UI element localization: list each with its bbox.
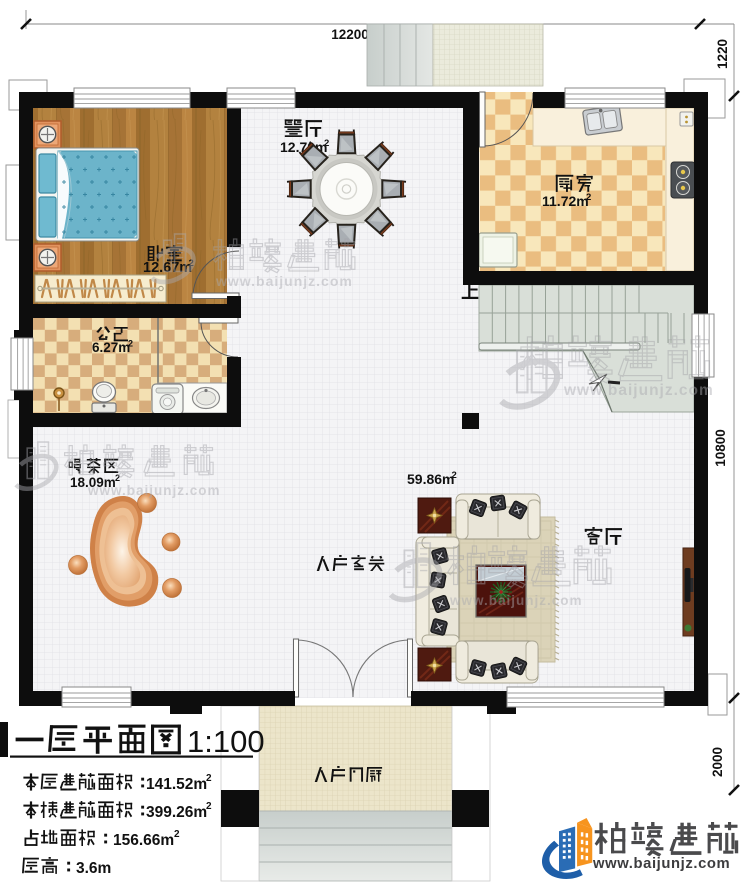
svg-text:2: 2 — [452, 470, 457, 481]
svg-text:12200: 12200 — [331, 27, 369, 42]
svg-text:2: 2 — [128, 339, 133, 349]
svg-text:3.6m: 3.6m — [76, 860, 111, 877]
svg-text:2: 2 — [174, 829, 180, 840]
svg-text:1:100: 1:100 — [187, 724, 265, 759]
svg-text:2: 2 — [206, 773, 212, 784]
svg-text:399.26m: 399.26m — [146, 804, 207, 821]
svg-text:156.66m: 156.66m — [113, 832, 174, 849]
svg-text:www.baijunjz.com: www.baijunjz.com — [563, 382, 714, 399]
svg-text:2000: 2000 — [710, 747, 725, 777]
svg-text:2: 2 — [324, 138, 329, 149]
svg-text:www.baijunjz.com: www.baijunjz.com — [449, 593, 583, 608]
svg-text:www.baijunjz.com: www.baijunjz.com — [215, 273, 353, 289]
svg-text:www.baijunjz.com: www.baijunjz.com — [592, 856, 730, 872]
svg-text:2: 2 — [206, 801, 212, 812]
svg-text:www.baijunjz.com: www.baijunjz.com — [87, 483, 221, 498]
svg-text:11.72m: 11.72m — [542, 193, 589, 209]
svg-text:141.52m: 141.52m — [146, 776, 207, 793]
svg-text:10800: 10800 — [713, 429, 728, 467]
svg-text:2: 2 — [586, 192, 591, 203]
svg-text:1220: 1220 — [715, 39, 730, 69]
svg-text:6.27m: 6.27m — [92, 340, 130, 355]
svg-text:59.86m: 59.86m — [407, 471, 454, 487]
